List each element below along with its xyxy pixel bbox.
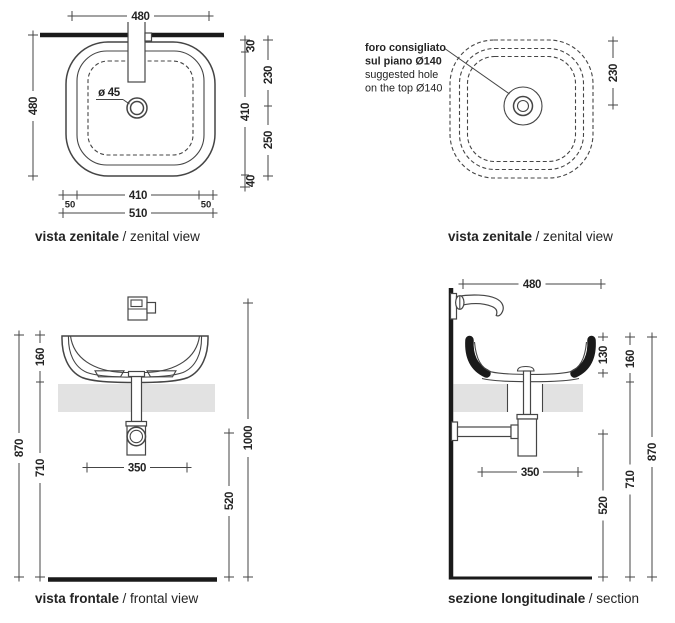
view-label-frontal: vista frontale/ frontal view	[35, 591, 199, 606]
waste-pipe-connector	[511, 425, 518, 439]
dim-160-basin: 160	[625, 350, 637, 368]
drain-inner-circle	[131, 102, 144, 115]
dim-160-basin: 160	[35, 348, 47, 366]
tap-body-top-view	[128, 18, 145, 82]
note-line-1: foro consigliato	[365, 42, 446, 54]
note-leader-line	[444, 48, 510, 94]
dim-410-bottom: 410	[129, 190, 147, 202]
dim-350-trap: 350	[128, 463, 146, 475]
dim-50-left: 50	[65, 200, 76, 211]
trap-flange-section	[517, 415, 538, 420]
view-section: 480 350 130 520 160	[448, 278, 659, 606]
dim-drain-diameter: ø 45	[98, 87, 121, 99]
dim-230-to-drain: 230	[608, 64, 620, 82]
drain-tailpipe-front	[132, 377, 142, 422]
dim-130-bowl: 130	[598, 346, 610, 364]
counter-hole-middle-dashed	[460, 49, 584, 170]
dim-870-total: 870	[14, 439, 26, 457]
dim-250-from-drain: 250	[263, 131, 275, 149]
dim-50-right: 50	[201, 200, 212, 211]
dim-230-to-drain: 230	[263, 66, 275, 84]
counter-hole-inner-dashed	[468, 57, 576, 162]
view-zenital-right: foro consigliato sul piano Ø140 suggeste…	[365, 40, 620, 244]
dim-520-outlet: 520	[224, 492, 236, 510]
dim-40-edge: 40	[246, 175, 258, 187]
technical-drawing-sheet: ø 45 480 480 410 50 50 510 30 410 40 230…	[0, 0, 675, 623]
view-label-zenital-right: vista zenitale/ zenital view	[448, 229, 613, 244]
dim-480-depth: 480	[523, 279, 541, 291]
note-line-2: sul piano Ø140	[365, 56, 442, 68]
drain-flange-circle	[504, 87, 542, 125]
dim-710-under: 710	[625, 470, 637, 488]
drain-outer-circle	[514, 97, 533, 116]
waste-wall-flange	[452, 422, 458, 441]
waste-pipe-horizontal	[458, 427, 512, 437]
mixer-spout-front	[147, 303, 156, 314]
drain-dome	[518, 367, 535, 372]
dim-480-top: 480	[131, 11, 149, 23]
drain-inner-circle	[518, 101, 529, 112]
dim-510-bottom: 510	[129, 208, 147, 220]
dim-1000-mixer: 1000	[243, 426, 255, 450]
dim-520-outlet: 520	[598, 496, 610, 514]
dim-870-total: 870	[647, 443, 659, 461]
dim-710-under: 710	[35, 459, 47, 477]
basin-front-inner-curve	[71, 336, 200, 373]
drain-flange-front	[129, 372, 145, 377]
dim-350-trap: 350	[521, 467, 539, 479]
dim-30-edge: 30	[246, 40, 258, 52]
dim-410-depth: 410	[240, 103, 252, 121]
view-zenital-left: ø 45 480 480 410 50 50 510 30 410 40 230…	[28, 10, 276, 244]
mixer-wall-plate	[451, 294, 457, 320]
basin-inner-surface	[475, 342, 587, 374]
counter-hole-outer-dashed	[450, 40, 593, 178]
trap-body-section	[518, 419, 537, 456]
note-line-4: on the top Ø140	[365, 83, 442, 95]
trap-flange-front	[126, 422, 147, 427]
note-line-3: suggested hole	[365, 69, 438, 81]
drain-tailpipe-section	[524, 371, 531, 415]
tap-spout-nub	[145, 33, 152, 41]
dimension-drawing: ø 45 480 480 410 50 50 510 30 410 40 230…	[0, 0, 675, 623]
view-label-zenital-left: vista zenitale/ zenital view	[35, 229, 200, 244]
view-label-section: sezione longitudinale/ section	[448, 591, 639, 606]
view-frontal: 350 870 160 710 1000 520 vista frontale/…	[14, 297, 256, 606]
dim-480-left: 480	[28, 97, 40, 115]
